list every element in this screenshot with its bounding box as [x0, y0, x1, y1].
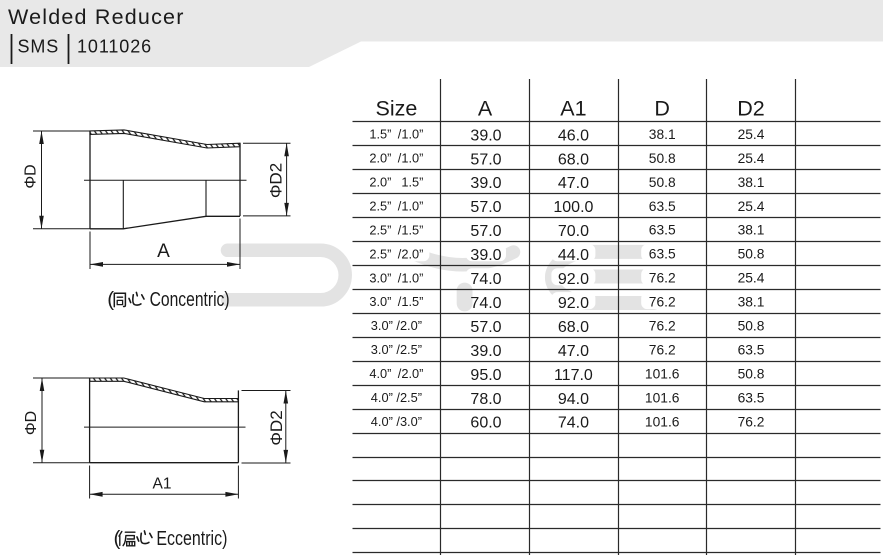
svg-text:94.0: 94.0: [558, 391, 589, 408]
svg-text:2.5” /1.5”: 2.5” /1.5”: [369, 222, 423, 237]
svg-text:38.1: 38.1: [738, 223, 765, 238]
svg-text:74.0: 74.0: [470, 295, 501, 312]
svg-text:95.0: 95.0: [470, 367, 501, 384]
svg-text:63.5: 63.5: [649, 199, 676, 214]
svg-text:3.0” /1.0”: 3.0” /1.0”: [369, 270, 423, 285]
svg-text:74.0: 74.0: [470, 271, 501, 288]
svg-text:4.0” /3.0”: 4.0” /3.0”: [371, 414, 422, 429]
svg-text:46.0: 46.0: [558, 127, 589, 144]
svg-text:50.8: 50.8: [738, 247, 765, 262]
svg-text:76.2: 76.2: [649, 319, 676, 334]
svg-text:ΦD: ΦD: [23, 164, 40, 188]
svg-text:63.5: 63.5: [649, 223, 676, 238]
svg-text:3.0” /1.5”: 3.0” /1.5”: [369, 294, 423, 309]
svg-text:Welded Reducer: Welded Reducer: [8, 5, 185, 29]
svg-text:70.0: 70.0: [558, 223, 589, 240]
svg-text:4.0” /2.0”: 4.0” /2.0”: [369, 366, 423, 381]
svg-text:76.2: 76.2: [649, 271, 676, 286]
svg-text:ΦD2: ΦD2: [267, 410, 286, 445]
svg-text:39.0: 39.0: [470, 175, 501, 192]
svg-text:76.2: 76.2: [649, 295, 676, 310]
svg-text:100.0: 100.0: [553, 199, 593, 216]
svg-text:63.5: 63.5: [738, 343, 765, 358]
svg-text:Size: Size: [375, 97, 417, 121]
svg-text:25.4: 25.4: [738, 151, 765, 166]
svg-text:38.1: 38.1: [649, 127, 676, 142]
svg-text:50.8: 50.8: [738, 319, 765, 334]
svg-text:38.1: 38.1: [738, 175, 765, 190]
svg-text:57.0: 57.0: [470, 199, 501, 216]
svg-text:Concentric): Concentric): [150, 288, 230, 311]
svg-text:SMS: SMS: [18, 37, 60, 57]
svg-text:A1: A1: [560, 97, 586, 121]
svg-text:(: (: [107, 288, 114, 311]
svg-text:A: A: [157, 241, 170, 262]
svg-text:68.0: 68.0: [558, 151, 589, 168]
svg-text:25.4: 25.4: [738, 199, 765, 214]
svg-text:63.5: 63.5: [738, 390, 765, 405]
svg-text:101.6: 101.6: [645, 414, 680, 429]
svg-text:101.6: 101.6: [645, 390, 680, 405]
svg-text:2.0” /1.0”: 2.0” /1.0”: [369, 151, 423, 166]
svg-text:47.0: 47.0: [558, 175, 589, 192]
svg-text:1011026: 1011026: [77, 37, 152, 57]
svg-text:25.4: 25.4: [738, 127, 765, 142]
svg-text:1.5” /1.0”: 1.5” /1.0”: [369, 127, 423, 142]
svg-text:57.0: 57.0: [470, 319, 501, 336]
svg-text:76.2: 76.2: [738, 414, 765, 429]
svg-text:117.0: 117.0: [554, 367, 593, 384]
svg-text:101.6: 101.6: [645, 366, 680, 381]
svg-text:D2: D2: [737, 97, 764, 121]
svg-text:68.0: 68.0: [558, 319, 589, 336]
svg-text:4.0” /2.5”: 4.0” /2.5”: [371, 390, 422, 405]
svg-text:ΦD: ΦD: [23, 411, 40, 435]
svg-text:39.0: 39.0: [470, 127, 501, 144]
svg-text:A: A: [478, 97, 493, 121]
svg-text:50.8: 50.8: [738, 366, 765, 381]
svg-text:63.5: 63.5: [649, 247, 676, 262]
svg-text:47.0: 47.0: [558, 343, 589, 360]
svg-text:2.5” /2.0”: 2.5” /2.0”: [369, 246, 423, 261]
svg-text:2.0” 1.5”: 2.0” 1.5”: [369, 175, 423, 190]
svg-text:39.0: 39.0: [470, 343, 501, 360]
svg-text:50.8: 50.8: [649, 151, 676, 166]
svg-text:38.1: 38.1: [738, 295, 765, 310]
svg-text:44.0: 44.0: [558, 247, 589, 264]
svg-text:2.5” /1.0”: 2.5” /1.0”: [369, 198, 423, 213]
svg-text:92.0: 92.0: [558, 271, 589, 288]
svg-text:78.0: 78.0: [470, 391, 501, 408]
svg-text:57.0: 57.0: [470, 223, 501, 240]
svg-text:D: D: [654, 97, 670, 121]
svg-text:A1: A1: [153, 476, 172, 493]
svg-text:92.0: 92.0: [558, 295, 589, 312]
svg-text:57.0: 57.0: [470, 151, 501, 168]
svg-text:3.0” /2.0”: 3.0” /2.0”: [371, 318, 422, 333]
svg-text:25.4: 25.4: [738, 271, 765, 286]
svg-text:50.8: 50.8: [649, 175, 676, 190]
svg-text:Eccentric): Eccentric): [156, 527, 227, 550]
svg-text:76.2: 76.2: [649, 343, 676, 358]
svg-text:60.0: 60.0: [470, 415, 501, 432]
svg-text:74.0: 74.0: [558, 415, 589, 432]
svg-text:3.0” /2.5”: 3.0” /2.5”: [371, 342, 422, 357]
svg-text:39.0: 39.0: [470, 247, 501, 264]
svg-text:ΦD2: ΦD2: [267, 163, 286, 198]
